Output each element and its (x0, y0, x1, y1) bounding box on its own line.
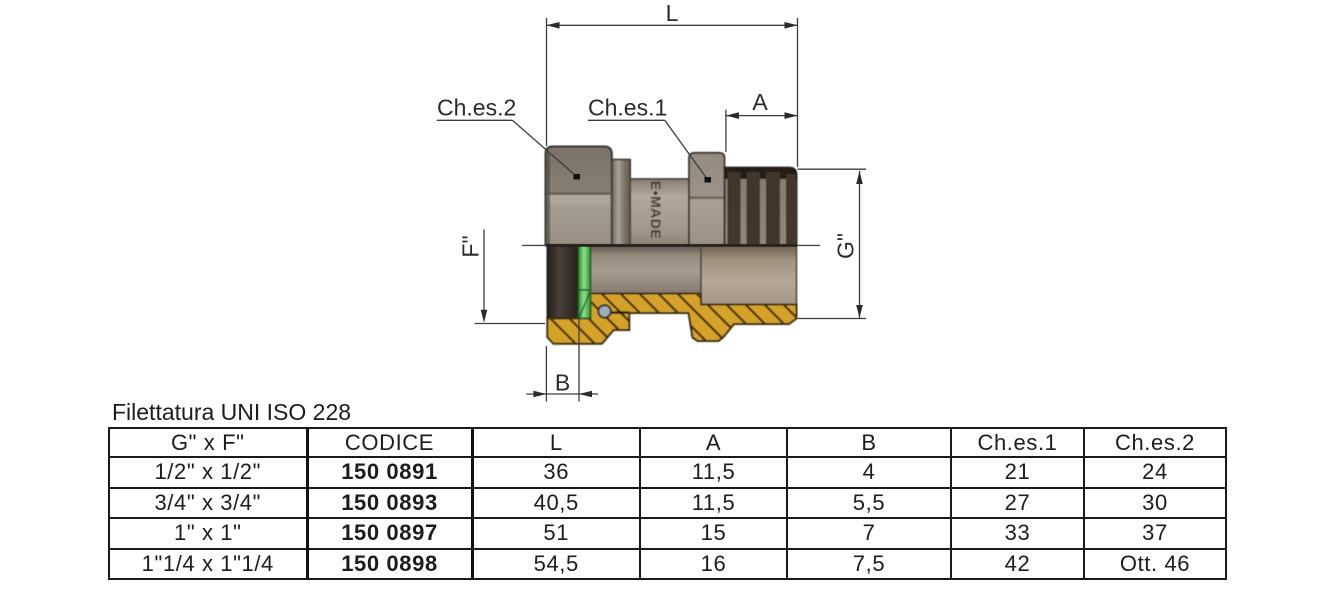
svg-text:Ch.es.1: Ch.es.1 (588, 95, 667, 121)
svg-text:F": F" (458, 235, 484, 257)
svg-text:Ch.es.2: Ch.es.2 (437, 95, 516, 121)
svg-text:B: B (555, 370, 570, 396)
svg-text:A: A (752, 89, 768, 115)
svg-text:L: L (666, 0, 679, 26)
svg-text:G": G" (833, 233, 859, 259)
svg-text:E•MADE: E•MADE (648, 181, 664, 239)
